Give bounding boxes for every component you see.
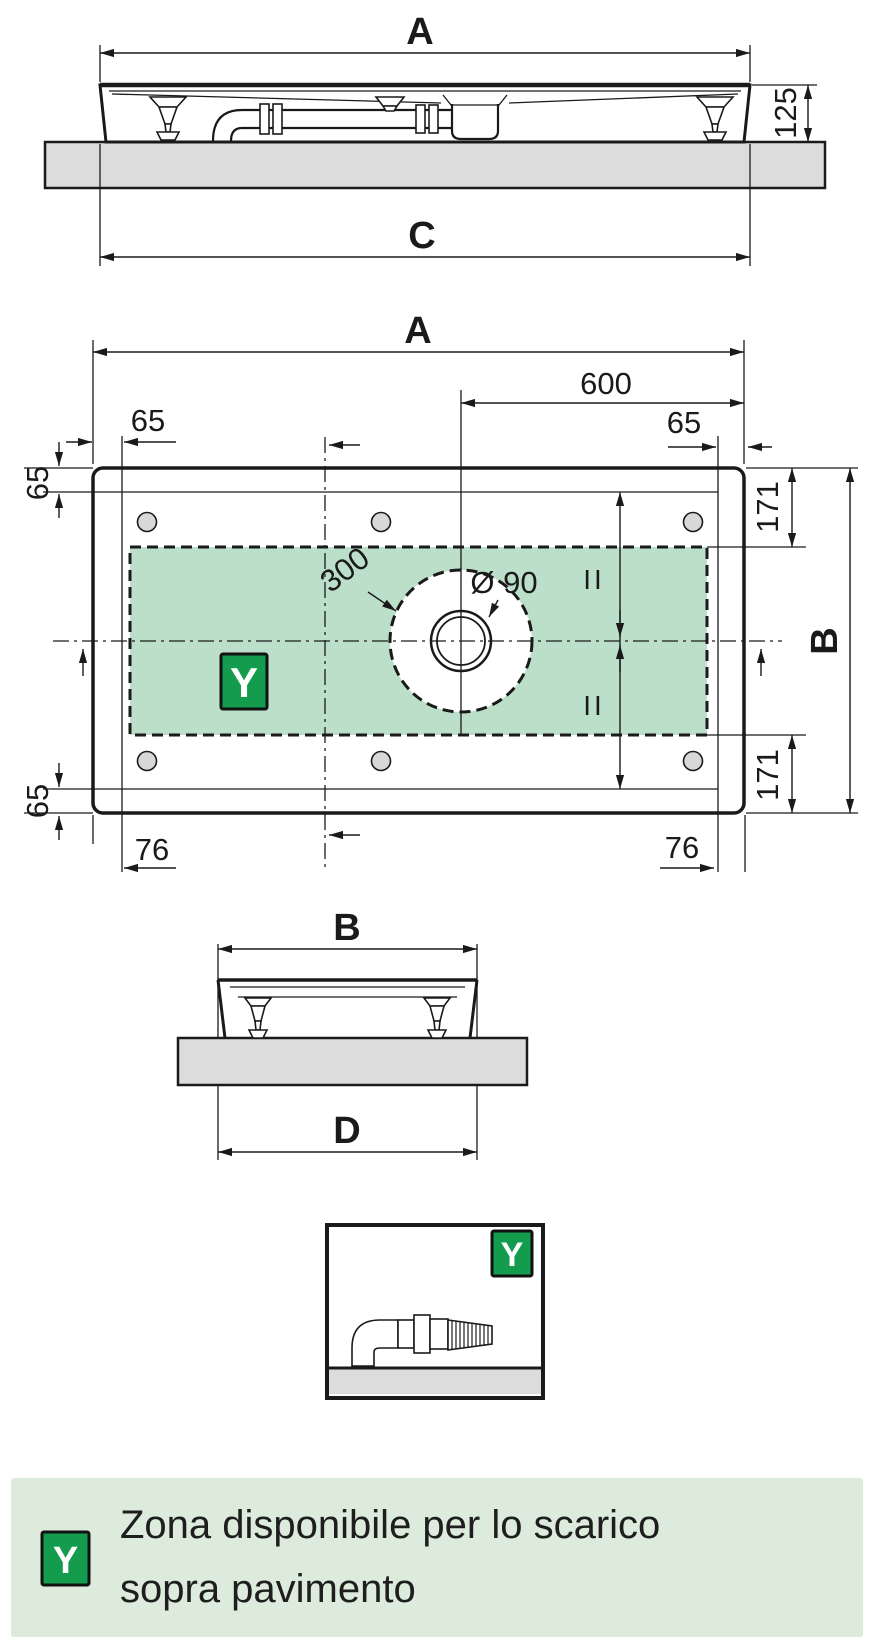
dim-front-width-a: A xyxy=(100,11,750,53)
tray-feet-side xyxy=(245,998,450,1038)
equality-mark-lower: II xyxy=(583,690,605,721)
dim-label: 65 xyxy=(20,784,55,818)
dim-left-lower-65: 65 xyxy=(20,763,59,840)
legend-line-1: Zona disponibile per lo scarico xyxy=(120,1503,660,1547)
dim-top-right-65: 65 xyxy=(667,405,772,447)
legend-line-2: sopra pavimento xyxy=(120,1567,416,1611)
zone-badge-legend: Y xyxy=(42,1532,89,1585)
dim-plan-width-a: A xyxy=(93,310,744,352)
dim-side-width-d: D xyxy=(218,1110,477,1152)
dim-bottom-right-76: 76 xyxy=(660,830,714,868)
floor-slab-side xyxy=(178,1038,527,1085)
dim-label: C xyxy=(408,215,435,257)
zone-badge-detail: Y xyxy=(492,1231,532,1276)
dim-drain-offset-600: 600 xyxy=(461,366,744,403)
floor-slab xyxy=(45,142,825,188)
dim-front-height-125: 125 xyxy=(768,85,808,142)
front-elevation-view: A 125 C xyxy=(45,11,825,266)
dim-label: B xyxy=(804,627,846,654)
dim-left-upper-65: 65 xyxy=(20,442,59,518)
dim-label: D xyxy=(333,1110,360,1152)
dim-label: Ø 90 xyxy=(470,565,537,600)
dim-right-lower-171: 171 xyxy=(750,735,792,813)
dim-label: B xyxy=(333,907,360,949)
equality-mark-upper: II xyxy=(583,564,605,595)
dim-label: 125 xyxy=(768,87,803,139)
dim-front-width-c: C xyxy=(100,215,750,257)
side-elevation-view: B D xyxy=(178,907,527,1160)
dim-bottom-left-76: 76 xyxy=(124,832,176,868)
dim-label: 65 xyxy=(20,466,55,500)
dim-label: 171 xyxy=(750,481,785,533)
zone-badge-letter: Y xyxy=(53,1540,78,1582)
dim-side-width-b: B xyxy=(218,907,477,949)
dim-label: 76 xyxy=(665,830,699,865)
technical-drawing-page: A 125 C xyxy=(0,0,874,1650)
dim-label: 65 xyxy=(131,403,165,438)
dim-label: A xyxy=(406,11,433,53)
corrugated-hose xyxy=(448,1320,492,1350)
plan-view: A 600 65 65 65 65 xyxy=(20,310,858,872)
dim-label: 65 xyxy=(667,405,701,440)
dim-plan-depth-b: B xyxy=(804,468,850,813)
zone-badge-letter: Y xyxy=(501,1236,524,1274)
legend: Y Zona disponibile per lo scarico sopra … xyxy=(11,1478,863,1637)
union-nut xyxy=(414,1315,430,1353)
detail-drain-pipe xyxy=(352,1315,492,1366)
dim-label: 171 xyxy=(750,749,785,801)
zone-badge-plan: Y xyxy=(221,654,267,709)
shower-tray-installation-diagram: A 125 C xyxy=(0,0,874,1650)
dim-label: 600 xyxy=(580,366,632,401)
detail-floor xyxy=(329,1368,541,1394)
dim-label: 76 xyxy=(135,832,169,867)
dim-top-left-65: 65 xyxy=(66,403,176,442)
pipe-elbow xyxy=(352,1320,398,1366)
zone-badge-letter: Y xyxy=(230,659,258,706)
dim-right-upper-171: 171 xyxy=(750,468,792,547)
dim-label: A xyxy=(404,310,431,352)
legend-panel xyxy=(11,1478,863,1637)
detail-view: Y xyxy=(327,1225,543,1398)
